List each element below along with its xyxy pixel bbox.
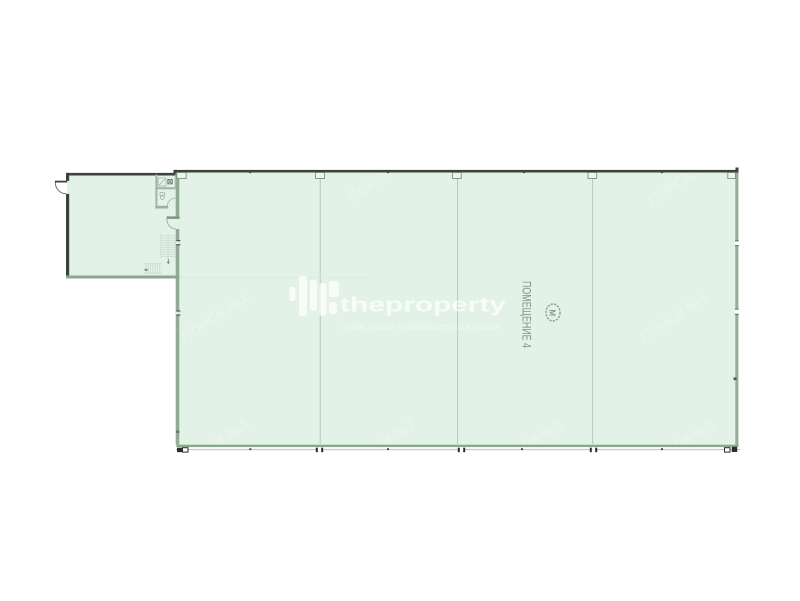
svg-text:М: М (548, 310, 557, 317)
svg-text:СЕРВИС ПОИСКА НЕДВИЖИМОСТИ №1: СЕРВИС ПОИСКА НЕДВИЖИМОСТИ №1 В РОССИИ (340, 323, 500, 332)
svg-text:theproperty: theproperty (340, 295, 507, 317)
svg-text:ПОМЕЩЕНИЕ 4: ПОМЕЩЕНИЕ 4 (520, 281, 534, 348)
